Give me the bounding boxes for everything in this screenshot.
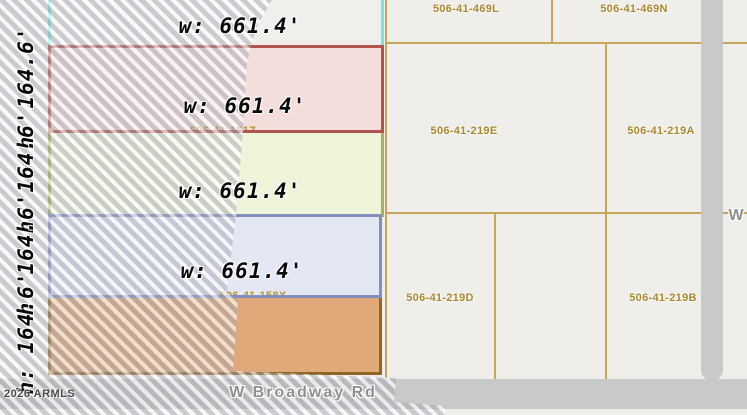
width-dimension-label: w: 661.4'	[179, 179, 302, 203]
parcel-boundary-line	[605, 42, 607, 380]
height-dimension-label: h: 164.6'	[14, 272, 38, 395]
vertical-road	[701, 0, 723, 381]
parcel-boundary-line	[385, 0, 387, 380]
parcel-id-label: 506-41-219A	[627, 125, 695, 137]
broadway-road-label: W Broadway Rd	[229, 384, 377, 402]
parcel-boundary-line	[494, 212, 496, 380]
width-dimension-label: w: 661.4'	[184, 94, 307, 118]
parcel-id-label: 506-41-219D	[406, 292, 474, 304]
parcel-boundary-line	[385, 212, 747, 214]
width-dimension-label: w: 661.4'	[181, 259, 304, 283]
parcel-id-label: 506-41-219B	[629, 292, 697, 304]
parcel-boundary-line	[551, 0, 553, 44]
armls-watermark: 2026 ARMLS	[4, 388, 75, 400]
parcel-boundary-line	[385, 42, 747, 44]
width-dimension-label: w: 661.4'	[179, 14, 302, 38]
parcel-id-label: 506-41-469N	[600, 3, 668, 15]
parcel-id-label: 506-41-219E	[431, 125, 498, 137]
plat-map-canvas: 506-41-151Z 506-41-158X w: 661.4' w: 661…	[0, 0, 747, 415]
right-road-label-partial: W	[728, 207, 745, 225]
parcel-id-label: 506-41-469L	[433, 3, 499, 15]
